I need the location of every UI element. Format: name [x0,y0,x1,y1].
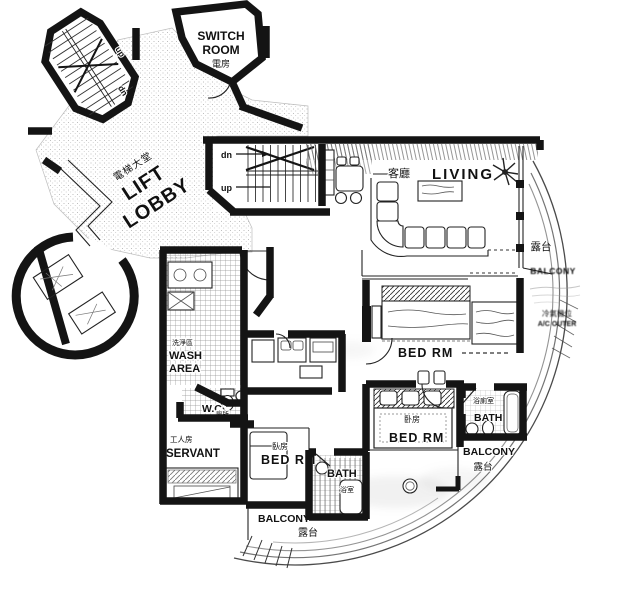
door-frame [418,371,429,384]
central-stair-dn-label: dn [221,150,232,160]
ac-note-zh: 冷氣機位 [542,308,572,318]
central-stair-up-label: up [221,183,232,193]
bathtub [504,391,521,435]
bathtub [340,480,362,514]
servant-label-en: SERVANT [166,448,220,460]
switch-room-label-zh: 電房 [212,58,230,69]
balcony-upper-right: 露台 BALCONY 冷氣機位 A/C OUTER [530,240,580,328]
pillow [380,391,397,405]
balcony-ur-label-zh: 露台 [531,240,552,253]
bath-lower-label-zh: 浴室 [340,485,354,494]
bath-right-label-en: BATH [474,412,502,424]
balcony-bottom-label-en: BALCONY [258,513,310,525]
sofa-cushion [405,227,424,248]
plant-icon [493,158,518,185]
pillow [402,391,419,405]
living-label-zh: 客廳 [388,166,410,180]
kitchen-island [300,366,322,378]
bedroom-center-label-en: BED RM [389,431,444,445]
servant-label-zh: 工人房 [170,434,193,444]
sofa-cushion [377,182,398,201]
sofa-cushion [377,202,398,221]
faint-scribbles [530,286,580,303]
basin [466,423,478,435]
wash-label-zh: 洗淨區 [172,338,193,347]
living-label-en: LIVING [432,166,494,183]
stool [403,479,417,493]
dining-chair-2 [350,157,359,165]
dining-stool-1 [336,193,347,204]
kitchen [252,334,336,378]
coffee-table [418,181,462,201]
sofa-cushion [426,227,445,248]
dining-table [336,166,363,191]
sofa-cushion [447,227,466,248]
dining-stool-2 [351,193,362,204]
bath-right-label-zh: 浴廁室 [473,396,494,405]
balcony-bottom-label-zh: 露台 [298,526,318,539]
ac-note-en: A/C OUTER [538,321,577,328]
switch-room-label-2: ROOM [202,43,239,57]
bedroom-upper-label: BED RM [398,346,453,360]
balcony-lr-label-en: BALCONY [463,446,515,458]
bath-lower-label-en: BATH [327,468,357,480]
fridge [252,340,274,362]
dining-chair-1 [337,157,346,165]
servant-room: 工人房 SERVANT [166,434,238,501]
balcony-ur-label-en: BALCONY [530,266,576,276]
door-frame [434,371,445,384]
bedroom-center-label-zh: 卧房 [404,414,420,424]
door-leaf [372,306,381,338]
sofa-corner [377,221,403,247]
washer [168,262,212,288]
wash-label-1: WASH [169,350,202,362]
wash-label-2: AREA [169,363,200,375]
lift-shaft [16,237,134,355]
switch-room-label-1: SWITCH [197,29,244,43]
floor-plan: up dn SWITCH ROOM 電房 dn [0,0,618,600]
bed [382,301,470,339]
bedroom-upper: BED RM [366,286,518,364]
bed-headboard [382,286,470,301]
wardrobe [472,302,518,344]
sofa-cushion [468,227,485,248]
bedroom-lower-label-zh: 臥房 [272,441,288,451]
door-pocket-black [362,306,371,342]
floor-plan-canvas: up dn SWITCH ROOM 電房 dn [0,0,618,600]
living-room: 客廳 LIVING [322,150,518,256]
balcony-lr-label-zh: 露台 [473,461,492,473]
